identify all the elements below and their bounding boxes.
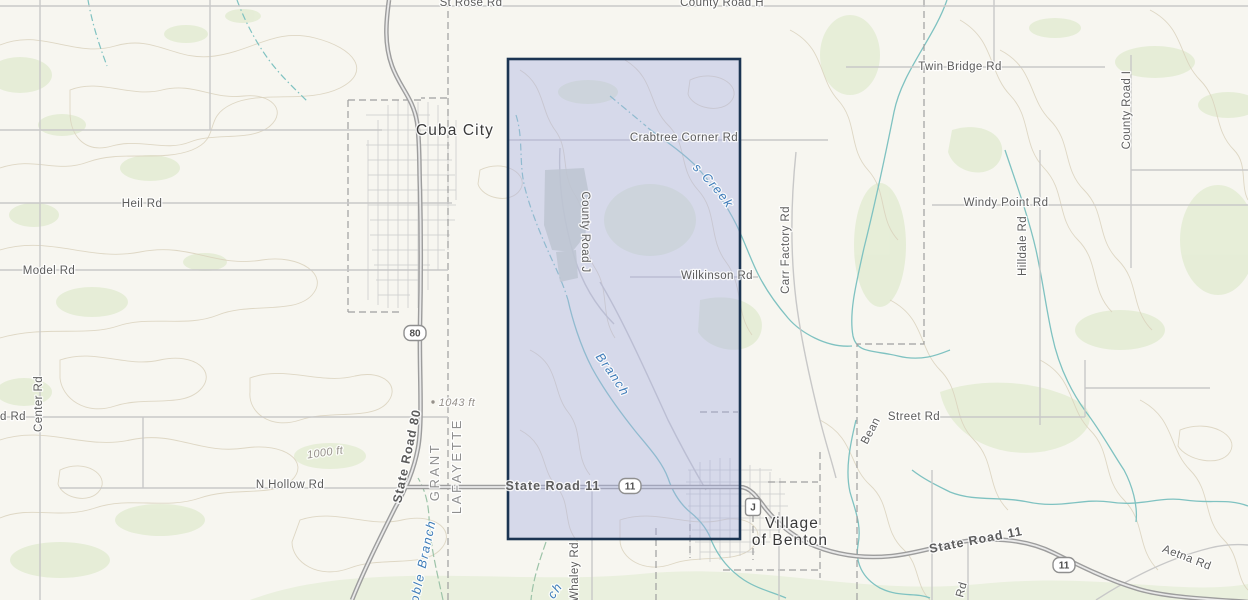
route-shield-county-j: J — [746, 499, 761, 516]
road-label-carr-factory-rd: Carr Factory Rd — [780, 206, 792, 294]
map-viewport[interactable]: St Rose Rd County Road H Twin Bridge Rd … — [0, 0, 1248, 600]
road-label-heil-rd: Heil Rd — [122, 198, 163, 210]
road-label-model-rd: Model Rd — [23, 265, 75, 277]
city-label-benton-line1: Village — [765, 515, 819, 532]
county-label-lafayette: LAFAYETTE — [449, 418, 464, 514]
county-label-grant: GRANT — [427, 443, 442, 502]
road-label-state-road-11-west: State Road 11 — [506, 479, 601, 493]
road-label-d-rd: d Rd — [0, 411, 26, 423]
city-label-benton-line2: of Benton — [752, 532, 828, 549]
route-shield-11-west: 11 — [619, 479, 641, 494]
road-label-crabtree-corner-rd: Crabtree Corner Rd — [630, 132, 738, 144]
road-label-county-road-j: County Road J — [579, 191, 591, 272]
road-label-whaley-rd: Whaley Rd — [569, 542, 581, 600]
road-label-center-rd: Center Rd — [33, 376, 45, 432]
city-label-cuba-city: Cuba City — [416, 122, 494, 139]
map-canvas[interactable]: St Rose Rd County Road H Twin Bridge Rd … — [0, 0, 1248, 600]
road-label-wilkinson-rd: Wilkinson Rd — [681, 270, 753, 282]
elevation-label-1043ft: 1043 ft — [439, 397, 476, 409]
road-label-street-rd: Street Rd — [888, 411, 940, 423]
road-label-twin-bridge-rd: Twin Bridge Rd — [918, 61, 1002, 73]
road-label-n-hollow-rd: N Hollow Rd — [256, 479, 324, 491]
svg-text:11: 11 — [1059, 561, 1070, 572]
road-label-hilldale-rd: Hilldale Rd — [1017, 216, 1029, 276]
selection-rectangle[interactable] — [508, 59, 740, 539]
route-shield-80: 80 — [404, 326, 426, 341]
road-label-county-road-h: County Road H — [680, 0, 764, 9]
svg-text:11: 11 — [625, 482, 636, 493]
svg-text:J: J — [750, 503, 756, 514]
svg-text:80: 80 — [409, 329, 421, 340]
spot-elevation-point — [431, 400, 434, 403]
route-shield-11-east: 11 — [1053, 558, 1075, 573]
road-label-windy-point-rd: Windy Point Rd — [964, 197, 1049, 209]
road-label-county-road-i: County Road I — [1121, 71, 1133, 150]
road-label-st-rose-rd: St Rose Rd — [440, 0, 503, 9]
